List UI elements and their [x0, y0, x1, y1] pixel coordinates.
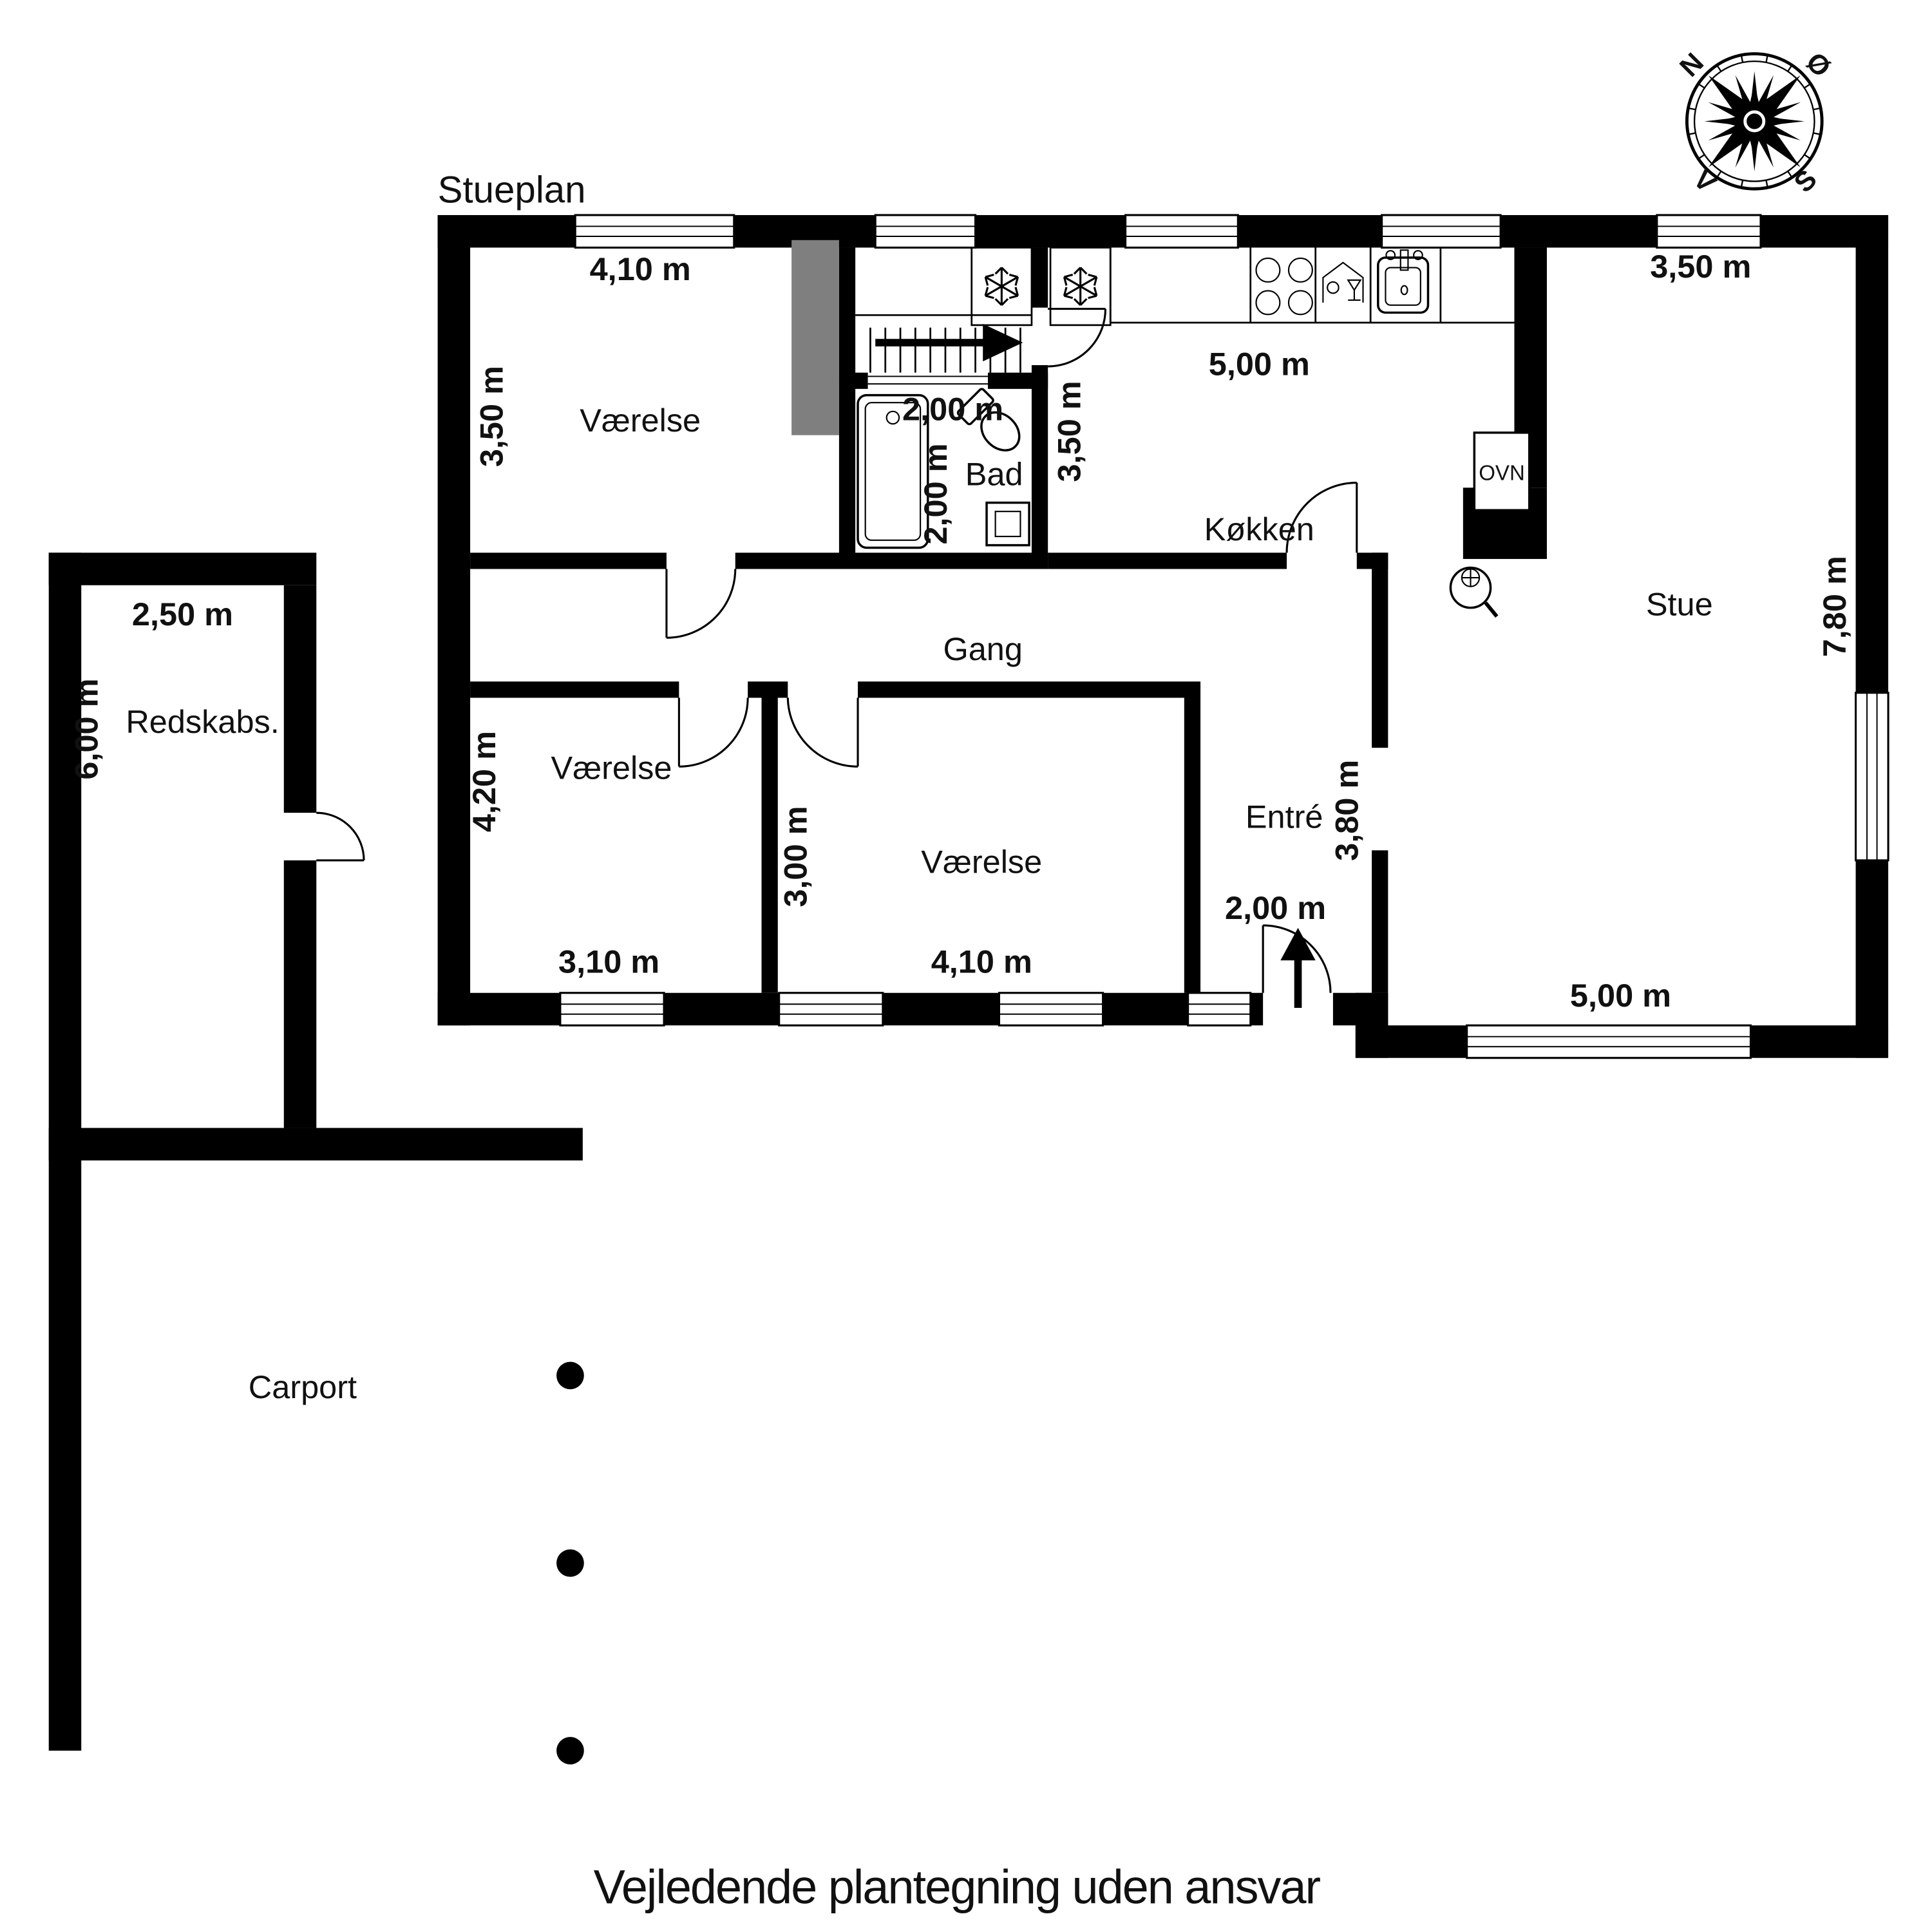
bedroom-s-height-dim: 3,00 m	[777, 806, 813, 907]
stove-icon	[1256, 258, 1312, 314]
bedroom-w-width-dim: 3,10 m	[558, 943, 659, 980]
hallway-label: Gang	[943, 630, 1022, 667]
dishwasher-icon	[1323, 263, 1363, 303]
carport-label: Carport	[249, 1368, 357, 1405]
plan-title: Stueplan	[438, 169, 586, 211]
window-bedroom-s-west	[779, 993, 883, 1025]
window-entry	[1188, 993, 1251, 1025]
kitchen-height-dim: 3,50 m	[1051, 381, 1088, 482]
door-bedroom-w	[679, 697, 748, 766]
living-bottom-dim: 5,00 m	[1570, 977, 1671, 1014]
carport-post	[556, 1737, 584, 1765]
shed-label: Redskabs.	[126, 703, 279, 740]
fridge-icon	[1050, 247, 1110, 325]
shed-width-dim: 2,50 m	[132, 596, 233, 632]
floor-plan-canvas: N Ø S V Stueplan 4,10 m Værelse 3,50 m 2…	[0, 0, 1932, 1932]
living-top-dim: 3,50 m	[1650, 248, 1751, 285]
window-bedroom-w	[560, 993, 664, 1025]
bedroom-s-label: Værelse	[921, 843, 1042, 880]
window-stairwell	[875, 215, 975, 247]
windows	[560, 215, 1888, 1058]
door-bedroom-nw	[667, 569, 735, 638]
bedroom-nw-height-dim: 3,50 m	[473, 366, 510, 467]
bedroom-nw-width-dim: 4,10 m	[590, 251, 691, 287]
carport-post	[556, 1362, 584, 1390]
bedroom-s-width-dim: 4,10 m	[931, 943, 1032, 980]
bedroom-nw-label: Værelse	[580, 402, 701, 439]
freezer-icon	[972, 247, 1032, 325]
kitchen-counter	[1110, 247, 1514, 323]
window-living-north	[1657, 215, 1761, 247]
kitchen-label: Køkken	[1204, 511, 1314, 547]
carport-post	[556, 1549, 584, 1577]
living-label: Stue	[1646, 585, 1713, 622]
door-shed	[316, 813, 364, 860]
bath-sink-icon	[987, 503, 1029, 545]
window-kitchen-east	[1382, 215, 1501, 247]
house-walls	[438, 215, 1888, 1058]
kitchen-width-dim: 5,00 m	[1209, 346, 1310, 383]
disclaimer-text: Vejledende plantegning uden ansvar	[594, 1860, 1321, 1913]
bedroom-w-label: Værelse	[551, 750, 672, 786]
door-bedroom-s	[788, 697, 858, 766]
compass-rose: N Ø S V	[1674, 46, 1837, 199]
shed-height-dim: 6,00 m	[68, 678, 104, 779]
oven-label: OVN	[1479, 461, 1525, 485]
kitchen-sink-icon	[1378, 250, 1428, 312]
window-bedroom-nw	[575, 215, 734, 247]
floor-plan-page: N Ø S V Stueplan 4,10 m Værelse 3,50 m 2…	[0, 0, 1932, 1932]
bath-width-dim: 2,00 m	[902, 390, 1003, 427]
bath-height-dim: 2,00 m	[917, 443, 954, 544]
carport-posts	[556, 1362, 584, 1765]
window-bedroom-s-east	[999, 993, 1103, 1025]
bedroom-w-height-dim: 4,20 m	[466, 731, 502, 832]
stair-direction-arrow-icon	[875, 324, 1023, 361]
entry-height-dim: 3,80 m	[1329, 760, 1365, 861]
entry-label: Entré	[1245, 798, 1323, 835]
door-stair-kitchen	[1048, 309, 1105, 366]
window-living-east	[1856, 693, 1888, 860]
window-kitchen-west	[1126, 215, 1238, 247]
living-right-dim: 7,80 m	[1816, 556, 1853, 657]
wood-stove-icon	[1450, 568, 1497, 617]
compass-south-label: S	[1788, 164, 1823, 198]
stair-chimney-grey-block	[791, 240, 839, 435]
entry-door-dim: 2,00 m	[1225, 889, 1326, 926]
bath-label: Bad	[965, 455, 1023, 492]
window-living-south	[1467, 1025, 1751, 1057]
